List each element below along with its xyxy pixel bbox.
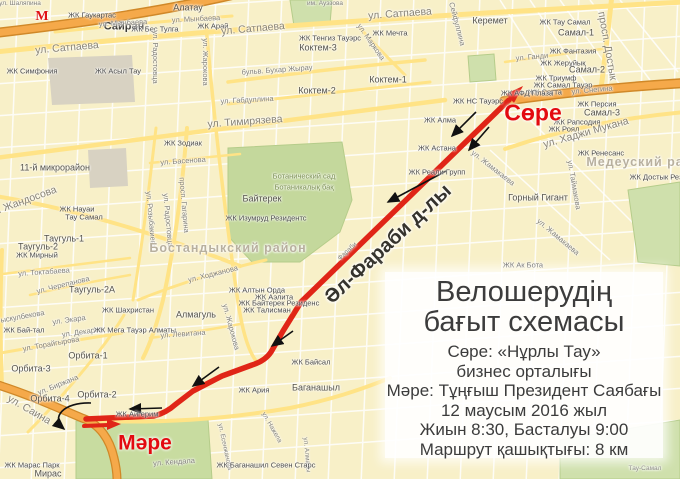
metro-icon: М — [35, 10, 48, 24]
map-label: ул. Радостовца — [162, 193, 174, 247]
map-label: Коктем-2 — [298, 87, 336, 96]
map-label: Сейфуллина — [448, 1, 467, 46]
map-label: ЖК Баганашил Севен Старс — [217, 461, 316, 469]
map-label: ул. Экара — [52, 314, 86, 326]
route-start-label: Сөре — [504, 102, 562, 125]
map-label: ул. Токтабаева — [18, 266, 70, 277]
map-label: Самал-3 — [584, 109, 620, 118]
map-label: 11-й микрорайон — [20, 164, 90, 173]
map-label: ул. Жамакаева — [470, 149, 516, 187]
map-label: ЖК Мечта — [372, 29, 407, 37]
map-label: ЖК АФД Плаза — [501, 89, 553, 97]
map-label: Алатау — [173, 4, 203, 13]
map-label: Орбита-1 — [68, 352, 107, 361]
map-label: Орбита-3 — [11, 365, 50, 374]
map-label: ул. Сатпаева — [368, 7, 432, 22]
map-label: ЖК Ак Бота — [503, 261, 543, 269]
map-label: ЖК Алма — [424, 116, 456, 124]
map-label: ул. Жарокова — [221, 303, 240, 351]
map-label: ЖК Бай-тал — [3, 326, 44, 334]
map-label: ул. Жамакаева — [535, 217, 580, 256]
map-label: просп. Гагарина — [178, 177, 190, 233]
map-label: Тау Самал — [65, 213, 103, 221]
map-label: ул. Ходжанова — [187, 264, 238, 284]
map-label: ЖК Асыл Тау — [95, 67, 141, 75]
map-label: ЖК Тау Самал — [540, 18, 591, 26]
map-label: им. Ауэзова — [307, 1, 343, 8]
map-label: Самал-1 — [558, 29, 594, 38]
map-label: ЖК Симфония — [7, 67, 58, 75]
map-canvas[interactable]: ул. ШаляпинаМСайранЖК ГаукартасАлатауул.… — [0, 0, 680, 479]
map-label: ул. Жандосова — [0, 185, 58, 220]
map-label: Тау-Самал — [629, 466, 662, 473]
map-label: ул. Тимирязева — [207, 114, 283, 130]
panel-date-line: 12 маусым 2016 жыл — [385, 401, 663, 421]
map-label: ул. Сатпаева — [35, 40, 99, 56]
map-label: ул. Шаляпина — [0, 1, 41, 8]
panel-finish-line: Мәре: Тұңғыш Президент Саябағы — [385, 381, 663, 401]
map-label: ул. Басенова — [160, 156, 206, 167]
map-label: ул. Таймакова — [566, 160, 582, 210]
map-label: ЖК Ария — [239, 386, 270, 394]
map-label: Орбита-4 — [30, 395, 69, 404]
map-label: ЖК Фантазия — [550, 47, 597, 55]
map-label: ул. Снегина — [571, 84, 613, 95]
route-finish-label: Мәре — [118, 433, 172, 454]
map-label: Алмагуль — [176, 311, 216, 320]
map-label: Горный Гигант — [508, 194, 568, 203]
map-label: Ботанический сад — [273, 172, 336, 180]
map-label: Медеуский район — [586, 156, 680, 169]
map-label: Орбита-2 — [77, 391, 116, 400]
map-label: ЖК Зодиак — [164, 139, 202, 147]
map-label: ЖК Байсал — [292, 358, 331, 366]
map-label: Таугуль-2А — [69, 286, 115, 295]
map-label: ЖК Талисман — [243, 306, 291, 314]
map-label: ул. Кендала — [153, 457, 195, 467]
map-label: ЖК Астана — [418, 144, 456, 152]
map-label: ул. Радостовца — [151, 30, 159, 83]
map-label: ЖК Тенгиз Тауэрс — [299, 34, 361, 42]
map-label: ЖК НС Тауэрс — [453, 97, 503, 105]
panel-title-line2: бағыт схемасы — [385, 307, 663, 337]
map-label: Байтерек — [243, 195, 282, 204]
map-label: ул. Габдуллина — [220, 95, 273, 105]
map-label: ул. Жарокова — [201, 38, 209, 85]
map-label: ЖК Гаукартас — [68, 11, 116, 19]
map-label: Ботаникалық бақ — [274, 183, 333, 191]
map-label: Баганашыл — [292, 384, 340, 393]
map-label: Керемет — [472, 17, 507, 26]
panel-distance-line: Маршрут қашықтығы: 8 км — [385, 440, 663, 460]
map-label: ЖК Изумруд Резидентс — [225, 214, 306, 222]
map-label: Коктем-1 — [369, 76, 407, 85]
map-label: ЖК Шахристан — [102, 306, 154, 314]
map-label: бульв. Бухар Жырау — [241, 64, 312, 76]
map-label: ул. Сатпаева — [221, 21, 285, 37]
panel-start-line2: бизнес орталығы — [385, 362, 663, 382]
info-panel: Велошерудің бағыт схемасы Сөре: «Нұрлы Т… — [385, 272, 663, 458]
map-label: ЖК Айгерим — [116, 410, 159, 418]
map-label: ул. Левитана — [160, 329, 206, 340]
map-label: ул. Нажела — [260, 412, 283, 445]
panel-start-line: Сөре: «Нұрлы Тау» — [385, 342, 663, 362]
map-label: Бостандыкский район — [149, 242, 306, 255]
panel-title-line1: Велошерудің — [385, 277, 663, 307]
map-label: Рыскулбекова — [0, 309, 45, 325]
map-label: ЖК Реали Групп — [409, 168, 466, 176]
map-label: ЖК Достык Рез — [630, 173, 680, 181]
map-label: Коктем-3 — [299, 44, 337, 53]
map-label: Мирас — [34, 470, 61, 479]
map-label: ЖК Мирный — [16, 251, 58, 259]
panel-time-line: Жиын 8:30, Басталуы 9:00 — [385, 420, 663, 440]
